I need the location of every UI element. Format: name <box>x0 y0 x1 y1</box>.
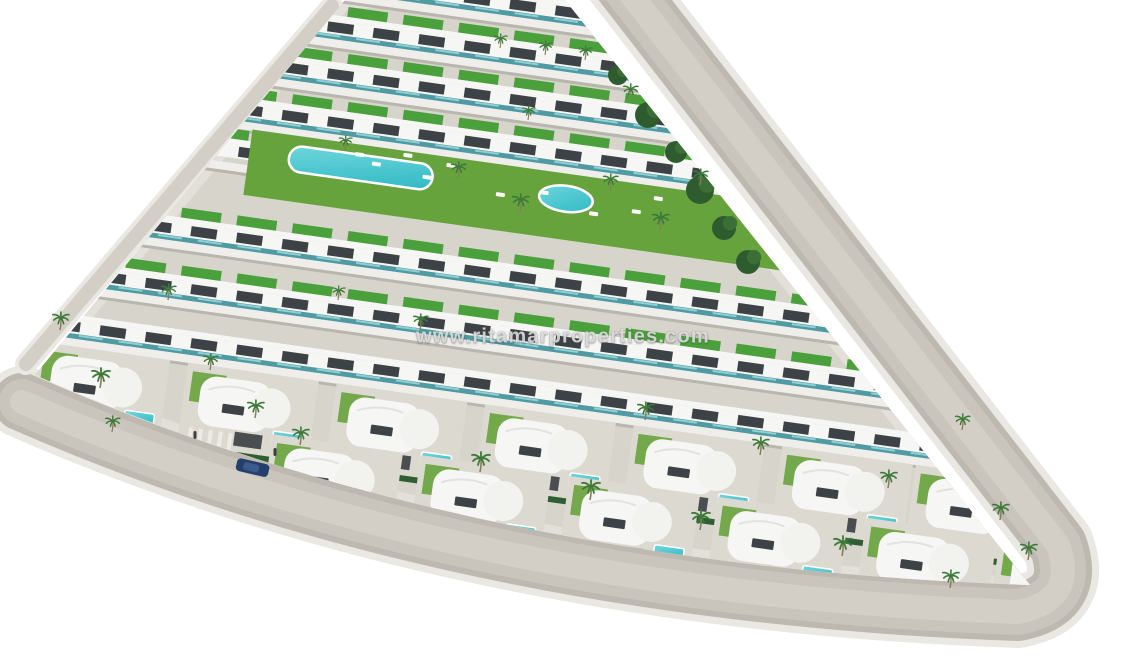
balustrade-highlight <box>1029 180 1053 185</box>
window <box>1056 76 1083 90</box>
window <box>54 30 81 44</box>
person <box>194 431 197 439</box>
balustrade-highlight <box>237 68 261 73</box>
roof-garden <box>791 21 832 36</box>
window <box>236 9 263 23</box>
roof-garden <box>1068 390 1109 405</box>
balustrade-highlight <box>39 40 63 45</box>
roof-garden <box>14 184 55 199</box>
balustrade-highlight <box>198 63 222 68</box>
window <box>54 265 81 279</box>
roof-garden <box>14 242 55 257</box>
window <box>1010 212 1037 226</box>
roof-garden <box>1124 116 1130 131</box>
roof-garden <box>236 0 277 7</box>
balustrade-highlight <box>990 127 1014 132</box>
roof-garden <box>1124 211 1130 226</box>
window <box>874 145 901 159</box>
balustrade-highlight <box>39 217 63 222</box>
roof-garden <box>153 118 194 133</box>
balustrade-highlight <box>1069 138 1093 143</box>
roof-garden <box>791 116 832 131</box>
tree-canopy-highlight <box>723 216 737 230</box>
window <box>874 98 901 112</box>
roof-garden <box>1068 332 1109 347</box>
window <box>1010 164 1037 178</box>
balustrade-highlight <box>1069 233 1093 238</box>
roof-garden <box>14 7 55 22</box>
window <box>99 84 126 98</box>
balustrade-highlight <box>79 0 103 4</box>
window <box>147 134 174 148</box>
roof-garden <box>735 62 776 77</box>
balustrade-highlight <box>0 83 24 88</box>
balustrade-highlight <box>1109 96 1130 101</box>
roof-garden <box>1068 60 1109 75</box>
roof-garden <box>791 69 832 84</box>
balustrade-highlight <box>79 94 103 99</box>
balustrade-highlight <box>1109 239 1130 244</box>
roof-garden <box>902 37 943 52</box>
roof-garden <box>98 110 139 125</box>
balustrade-highlight <box>0 212 24 217</box>
window <box>1056 348 1083 362</box>
window <box>1056 124 1083 138</box>
balustrade-highlight <box>950 121 974 126</box>
tree-canopy-highlight <box>747 250 761 264</box>
roof-garden <box>735 14 776 29</box>
balustrade-highlight <box>1109 368 1130 373</box>
balustrade-highlight <box>1109 480 1130 485</box>
window <box>1056 171 1083 185</box>
roof-garden <box>125 71 166 86</box>
window <box>1056 406 1083 420</box>
roof-garden <box>125 23 166 38</box>
balustrade-highlight <box>990 222 1014 227</box>
window <box>919 152 946 166</box>
balustrade-highlight <box>911 211 935 216</box>
window <box>99 0 126 3</box>
balustrade-highlight <box>79 46 103 51</box>
balustrade-highlight <box>198 16 222 21</box>
balustrade-highlight <box>950 168 974 173</box>
roof-garden <box>957 93 998 108</box>
balustrade-highlight <box>1109 426 1130 431</box>
balustrade-highlight <box>1029 228 1053 233</box>
roof-garden <box>1124 163 1130 178</box>
tree-canopy-highlight <box>675 141 688 154</box>
window <box>190 49 217 63</box>
balustrade-highlight <box>1069 474 1093 479</box>
balustrade-highlight <box>1069 90 1093 95</box>
balustrade-highlight <box>39 88 63 93</box>
window <box>965 63 992 77</box>
roof-garden <box>1013 148 1054 163</box>
balustrade-highlight <box>1109 191 1130 196</box>
balustrade-highlight <box>871 110 895 115</box>
balustrade-highlight <box>990 79 1014 84</box>
balustrade-highlight <box>79 223 103 228</box>
window <box>54 207 81 221</box>
window <box>965 111 992 125</box>
window <box>783 37 810 51</box>
roof-garden <box>1013 101 1054 116</box>
balustrade-highlight <box>1029 415 1053 420</box>
roof-garden <box>236 38 277 53</box>
roof-garden <box>1068 108 1109 123</box>
aerial-render-scene <box>0 0 1130 665</box>
window <box>1010 399 1037 413</box>
roof-garden <box>902 180 943 195</box>
balustrade-highlight <box>39 275 63 280</box>
window <box>919 57 946 71</box>
roof-garden <box>70 15 111 30</box>
window <box>8 313 35 327</box>
window <box>1010 341 1037 355</box>
balustrade-highlight <box>950 73 974 78</box>
window <box>99 213 126 227</box>
roof-garden <box>1124 398 1130 413</box>
balustrade-highlight <box>831 105 855 110</box>
balustrade-highlight <box>831 57 855 62</box>
balustrade-highlight <box>871 157 895 162</box>
window <box>1101 130 1128 144</box>
window <box>965 206 992 220</box>
roof-garden <box>181 79 222 94</box>
person <box>274 448 277 456</box>
window <box>965 335 992 349</box>
window <box>1010 117 1037 131</box>
window <box>874 50 901 64</box>
window <box>1101 82 1128 96</box>
window <box>919 105 946 119</box>
balustrade-highlight <box>0 35 24 40</box>
tree-canopy-highlight <box>617 65 629 77</box>
window <box>101 128 128 142</box>
roof-garden <box>1068 155 1109 170</box>
balustrade-highlight <box>752 46 776 51</box>
roof-garden <box>957 45 998 60</box>
roof-garden <box>846 29 887 44</box>
window <box>828 44 855 58</box>
window <box>1056 219 1083 233</box>
roof-garden <box>1013 53 1054 68</box>
window <box>919 200 946 214</box>
tree-canopy-highlight <box>647 102 663 118</box>
roof-garden <box>1013 383 1054 398</box>
roof-garden <box>1124 68 1130 83</box>
balustrade-highlight <box>990 174 1014 179</box>
window <box>874 193 901 207</box>
balustrade-highlight <box>158 105 182 110</box>
window <box>145 43 172 57</box>
balustrade-highlight <box>118 4 142 9</box>
balustrade-highlight <box>118 51 142 56</box>
window <box>965 158 992 172</box>
window <box>145 91 172 105</box>
roof-garden <box>181 31 222 46</box>
window <box>8 24 35 38</box>
balustrade-highlight <box>0 270 24 275</box>
balustrade-highlight <box>1069 420 1093 425</box>
window <box>190 97 217 111</box>
aerial-property-render: www.ritamarproperties.com <box>0 0 1130 665</box>
roof-garden <box>70 63 111 78</box>
balustrade-highlight <box>118 99 142 104</box>
balustrade-highlight <box>158 57 182 62</box>
window <box>8 201 35 215</box>
window <box>54 78 81 92</box>
roof-garden <box>902 85 943 100</box>
balustrade-highlight <box>911 68 935 73</box>
roof-garden <box>1124 340 1130 355</box>
window <box>1101 177 1128 191</box>
balustrade-highlight <box>911 116 935 121</box>
balustrade-highlight <box>990 351 1014 356</box>
balustrade-highlight <box>158 10 182 15</box>
roof-garden <box>1013 325 1054 340</box>
window <box>8 259 35 273</box>
roof-garden <box>846 77 887 92</box>
roof-garden <box>1013 196 1054 211</box>
roof-garden <box>1068 203 1109 218</box>
window <box>145 0 172 9</box>
balustrade-highlight <box>713 40 737 45</box>
balustrade-highlight <box>1069 185 1093 190</box>
window <box>737 31 764 45</box>
window <box>1101 466 1128 480</box>
balustrade-highlight <box>1029 133 1053 138</box>
balustrade-highlight <box>871 205 895 210</box>
roof-garden <box>957 317 998 332</box>
balustrade-highlight <box>792 51 816 56</box>
window <box>8 72 35 86</box>
window <box>190 2 217 16</box>
balustrade-highlight <box>237 21 261 26</box>
roof-garden <box>902 132 943 147</box>
window <box>828 92 855 106</box>
roof-garden <box>846 172 887 187</box>
window <box>1101 354 1128 368</box>
window <box>1101 412 1128 426</box>
window <box>99 36 126 50</box>
balustrade-highlight <box>871 62 895 67</box>
balustrade-highlight <box>1069 362 1093 367</box>
balustrade-highlight <box>198 111 222 116</box>
roof-garden <box>957 140 998 155</box>
roof-garden <box>957 188 998 203</box>
window <box>236 56 263 70</box>
roof-garden <box>846 124 887 139</box>
balustrade-highlight <box>792 99 816 104</box>
roof-garden <box>70 192 111 207</box>
balustrade-highlight <box>0 324 24 329</box>
window <box>783 85 810 99</box>
balustrade-highlight <box>1109 144 1130 149</box>
window <box>828 139 855 153</box>
balustrade-highlight <box>831 152 855 157</box>
window <box>1010 69 1037 83</box>
window <box>1101 225 1128 239</box>
balustrade-highlight <box>1029 85 1053 90</box>
balustrade-highlight <box>950 345 974 350</box>
balustrade-highlight <box>911 163 935 168</box>
balustrade-highlight <box>1029 357 1053 362</box>
window <box>1056 460 1083 474</box>
balustrade-highlight <box>950 216 974 221</box>
roof-garden <box>14 55 55 70</box>
